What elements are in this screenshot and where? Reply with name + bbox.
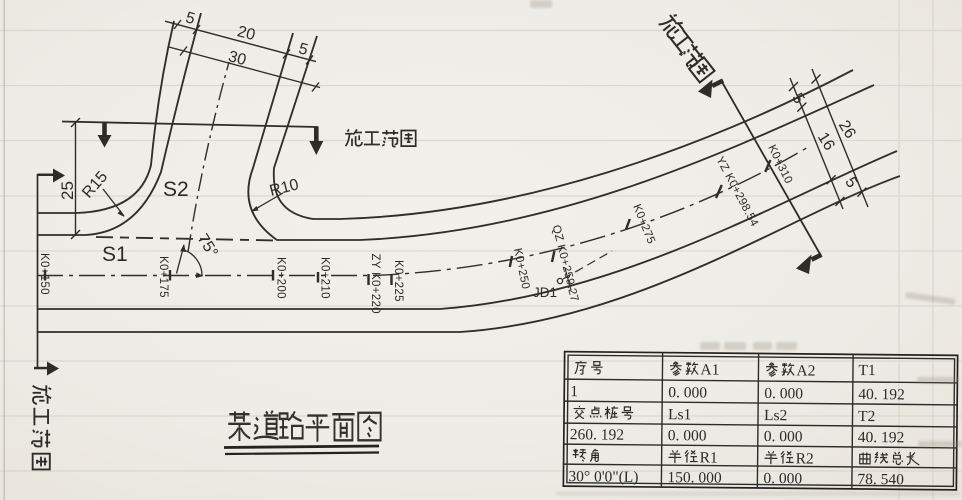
svg-text:K0+210: K0+210 <box>318 257 330 299</box>
svg-text:30° 0'0"(L): 30° 0'0"(L) <box>568 468 638 486</box>
svg-text:40. 192: 40. 192 <box>858 429 905 446</box>
svg-text:K0+200: K0+200 <box>274 257 286 299</box>
svg-text:Ls1: Ls1 <box>668 406 691 423</box>
svg-text:K0+225: K0+225 <box>392 260 404 302</box>
svg-text:JD1: JD1 <box>533 285 557 300</box>
svg-text:0. 000: 0. 000 <box>764 428 803 445</box>
svg-text:260. 192: 260. 192 <box>570 426 624 444</box>
svg-text:40. 192: 40. 192 <box>858 386 905 403</box>
svg-text:0. 000: 0. 000 <box>763 470 802 487</box>
svg-text:0. 000: 0. 000 <box>764 385 803 402</box>
svg-text:K0+175: K0+175 <box>157 256 169 298</box>
svg-text:78. 540: 78. 540 <box>857 471 904 488</box>
svg-text:A2: A2 <box>796 362 815 379</box>
svg-text:S1: S1 <box>102 243 128 266</box>
svg-text:T1: T1 <box>858 362 875 379</box>
svg-text:150. 000: 150. 000 <box>667 469 722 487</box>
svg-text:Ls2: Ls2 <box>764 407 787 424</box>
svg-text:R2: R2 <box>796 450 814 467</box>
svg-text:R1: R1 <box>700 449 718 466</box>
svg-text:25: 25 <box>58 181 77 200</box>
svg-text:T2: T2 <box>858 408 875 425</box>
svg-text:0. 000: 0. 000 <box>668 427 707 444</box>
svg-text:1: 1 <box>570 383 578 400</box>
svg-text:A1: A1 <box>700 361 719 378</box>
svg-text:0. 000: 0. 000 <box>668 384 707 401</box>
svg-text:ZY K0+220: ZY K0+220 <box>369 254 381 314</box>
svg-text:S2: S2 <box>163 178 189 201</box>
